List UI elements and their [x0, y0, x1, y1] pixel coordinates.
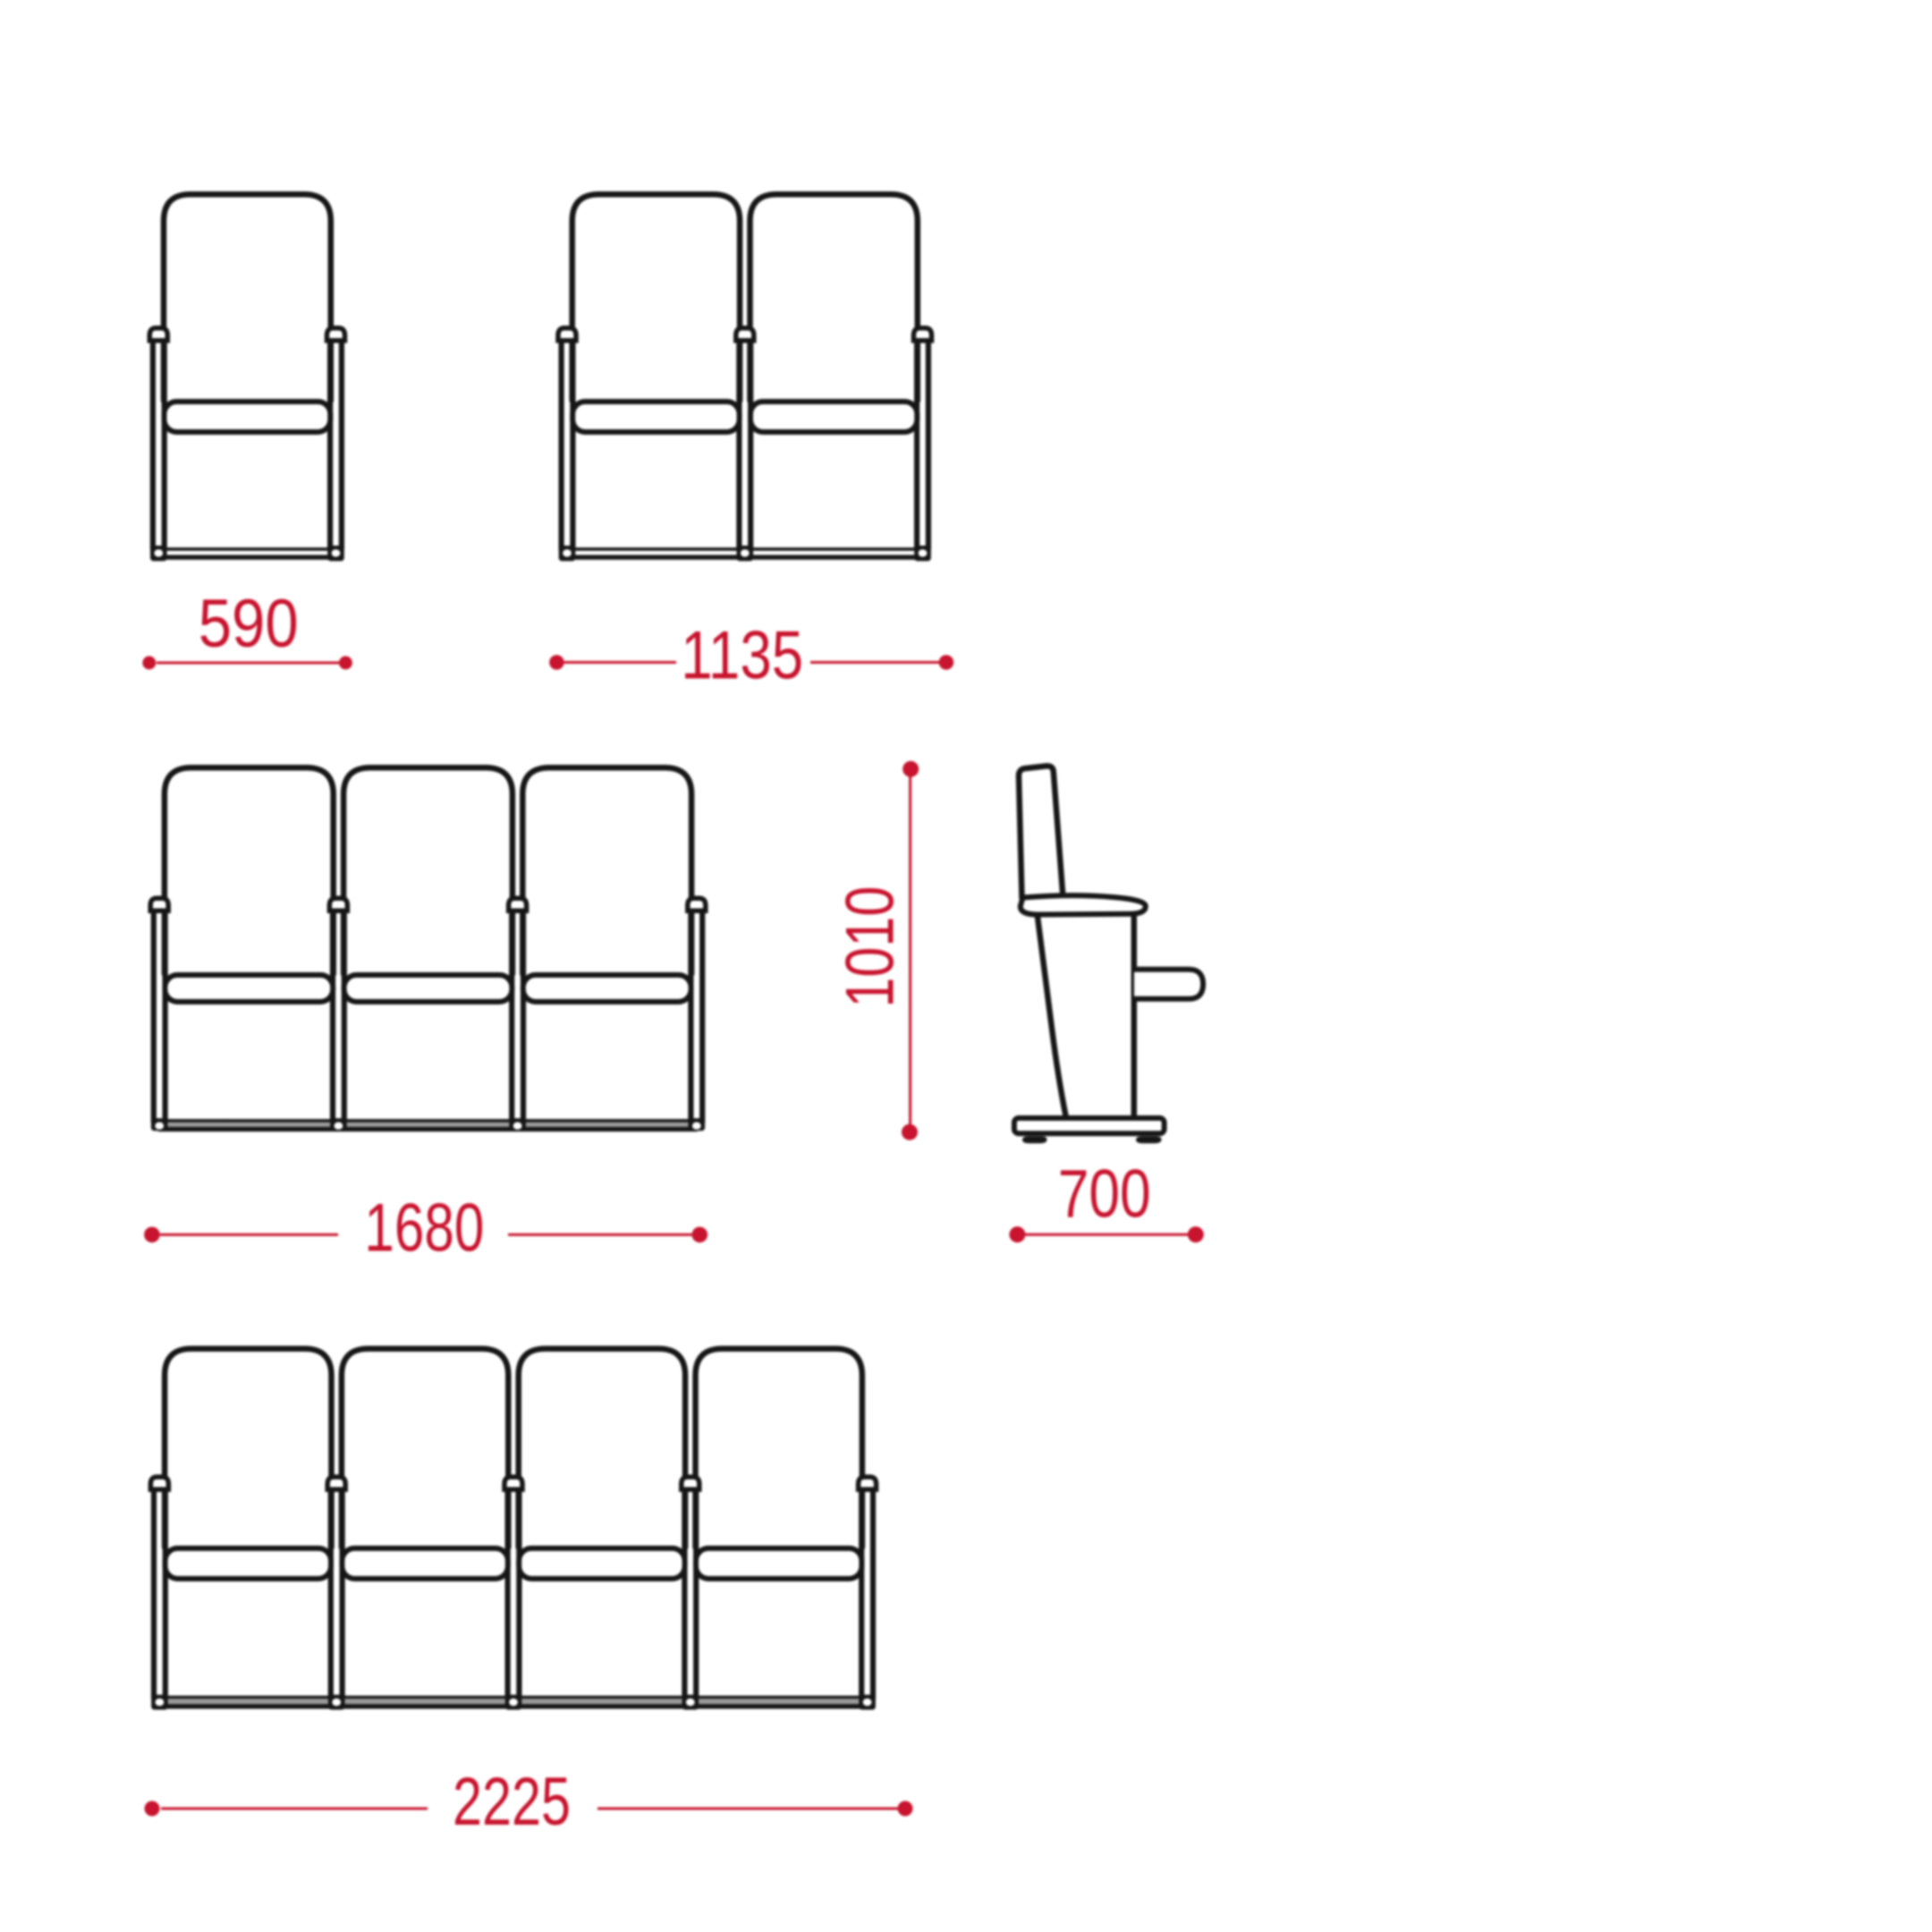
svg-text:700: 700 [1058, 1157, 1151, 1233]
svg-text:1010: 1010 [833, 886, 909, 1008]
svg-text:2225: 2225 [453, 1764, 571, 1840]
svg-text:1680: 1680 [364, 1191, 484, 1267]
svg-text:1135: 1135 [681, 618, 803, 694]
svg-text:590: 590 [199, 586, 299, 662]
